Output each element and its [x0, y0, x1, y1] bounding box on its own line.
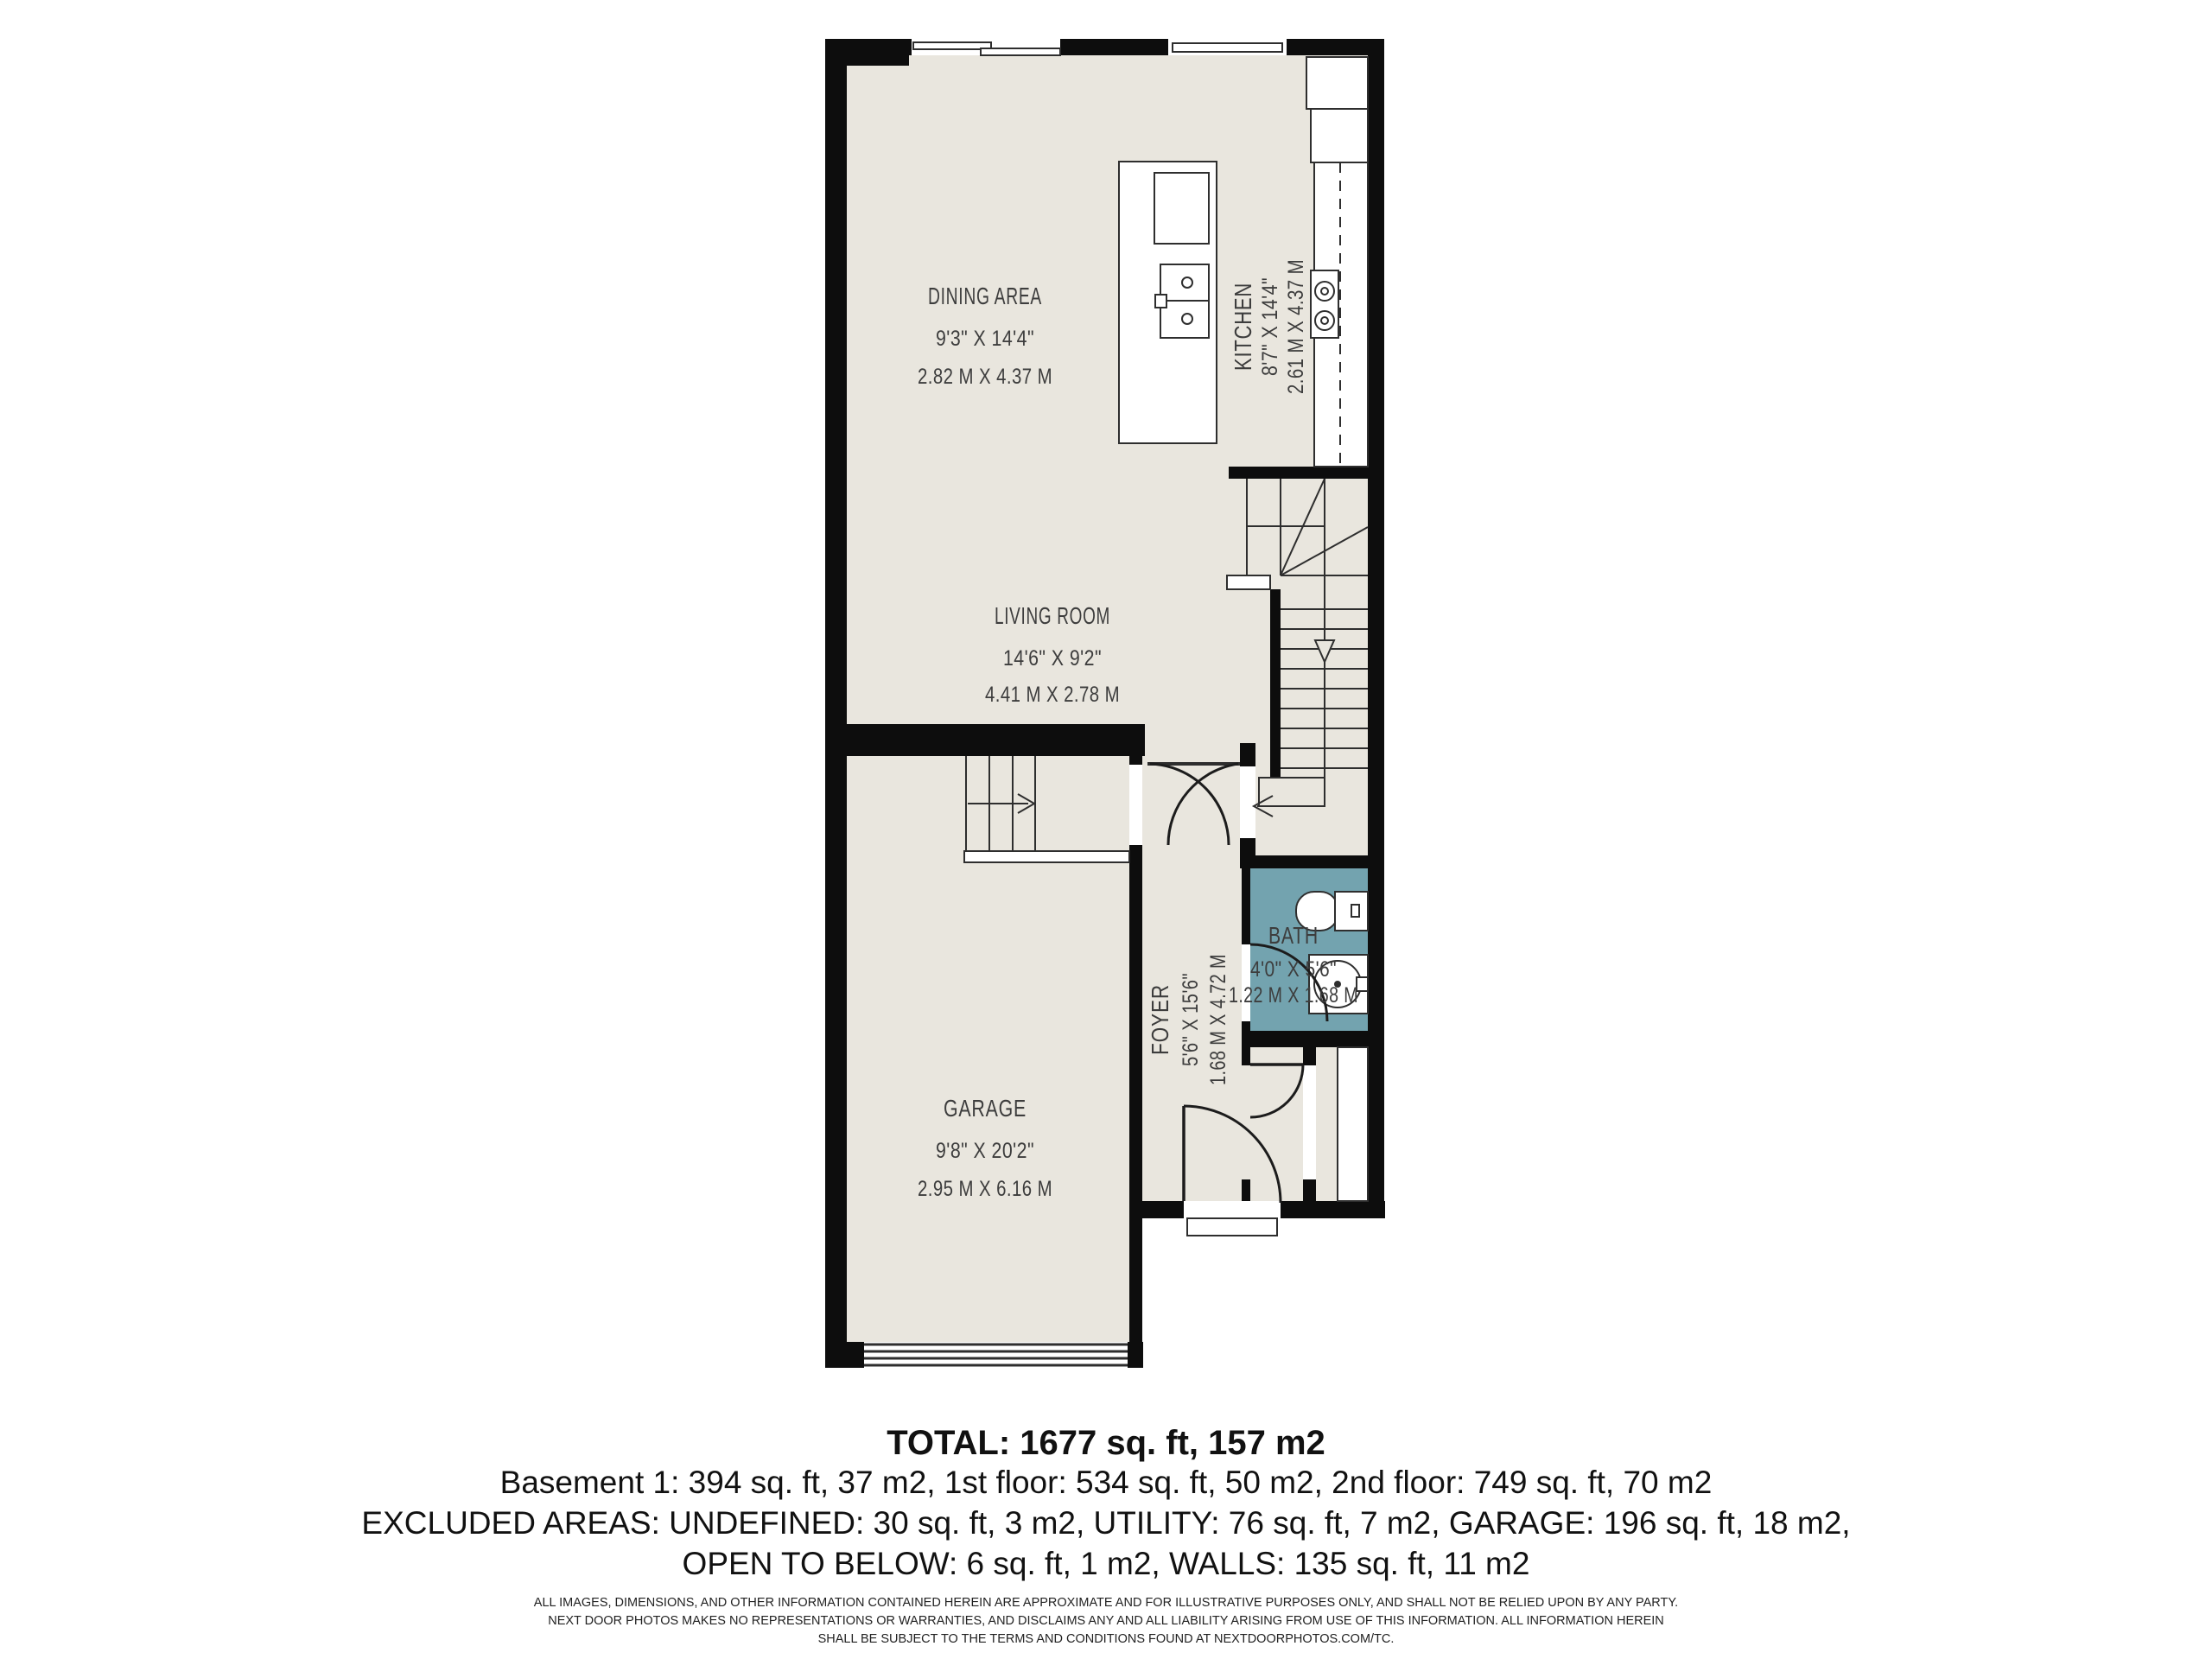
closet-door-opening	[1303, 1065, 1316, 1179]
floorplan-drawing: DINING AREA 9'3" X 14'4" 2.82 M X 4.37 M…	[0, 0, 2212, 1659]
disclaimer-line-3: SHALL BE SUBJECT TO THE TERMS AND CONDIT…	[0, 1630, 2212, 1649]
excluded-areas-text-2: OPEN TO BELOW: 6 sq. ft, 1 m2, WALLS: 13…	[0, 1543, 2212, 1584]
room-dims-bath-metric: 1.22 M X 1.68 M	[1229, 983, 1358, 1007]
window-1-sash-right	[981, 48, 1060, 55]
room-label-bath: BATH	[1268, 922, 1319, 949]
disclaimer-line-1: ALL IMAGES, DIMENSIONS, AND OTHER INFORM…	[0, 1594, 2212, 1612]
jamb-door-opening	[1240, 766, 1255, 838]
disclaimer-line-2: NEXT DOOR PHOTOS MAKES NO REPRESENTATION…	[0, 1612, 2212, 1630]
wall-bath-top	[1242, 855, 1384, 868]
room-label-foyer: FOYER	[1147, 984, 1173, 1055]
wall-kitchen-stair	[1229, 467, 1384, 479]
wall-left	[825, 39, 847, 1368]
window-1-sash-left	[913, 42, 991, 49]
room-label-dining: DINING AREA	[928, 283, 1042, 309]
wall-right	[1368, 39, 1384, 1218]
room-dims-bath-imperial: 4'0" X 5'6"	[1250, 957, 1337, 982]
disclaimer: ALL IMAGES, DIMENSIONS, AND OTHER INFORM…	[0, 1594, 2212, 1649]
room-dims-foyer-metric: 1.68 M X 4.72 M	[1206, 954, 1230, 1085]
wall-garage-corner-right	[1128, 1342, 1143, 1368]
front-door-opening	[1184, 1201, 1281, 1218]
room-dims-dining-imperial: 9'3" X 14'4"	[936, 327, 1034, 351]
room-dims-dining-metric: 2.82 M X 4.37 M	[918, 365, 1052, 389]
floorplan-page: { "plan": { "colors": { "floor": "#e9e6d…	[0, 0, 2212, 1659]
total-area-text: TOTAL: 1677 sq. ft, 157 m2	[0, 1424, 2212, 1462]
stair-jog	[1227, 575, 1270, 589]
room-dims-garage-metric: 2.95 M X 6.16 M	[918, 1177, 1052, 1201]
area-summary: TOTAL: 1677 sq. ft, 157 m2 Basement 1: 3…	[0, 1424, 2212, 1649]
garage-door	[864, 1344, 1128, 1365]
room-label-living: LIVING ROOM	[995, 602, 1110, 629]
steps-landing	[964, 851, 1129, 862]
garage-door-opening	[1129, 765, 1142, 845]
wall-bath-bottom	[1242, 1031, 1368, 1047]
room-dims-garage-imperial: 9'8" X 20'2"	[936, 1139, 1034, 1163]
exterior-cutout	[1142, 1218, 1385, 1368]
wall-garage-corner-left	[825, 1342, 864, 1368]
wall-living-garage	[825, 724, 1145, 756]
island-faucet-icon	[1155, 295, 1166, 308]
porch-step	[1187, 1218, 1277, 1236]
excluded-areas-text-1: EXCLUDED AREAS: UNDEFINED: 30 sq. ft, 3 …	[0, 1503, 2212, 1543]
fridge-icon	[1306, 57, 1368, 109]
island-cooktop	[1154, 173, 1209, 244]
closet-sliding-door	[1338, 1047, 1368, 1201]
floor-areas-text: Basement 1: 394 sq. ft, 37 m2, 1st floor…	[0, 1462, 2212, 1503]
window-2-frame	[1173, 43, 1282, 52]
stove-icon	[1311, 270, 1338, 338]
room-dims-kitchen-metric: 2.61 M X 4.37 M	[1284, 259, 1308, 394]
wall-top	[825, 39, 1384, 55]
wall-top-left-block	[825, 39, 909, 66]
room-label-garage: GARAGE	[944, 1095, 1027, 1122]
fridge-icon-lower	[1311, 109, 1368, 162]
room-dims-foyer-imperial: 5'6" X 15'6"	[1179, 973, 1203, 1066]
wall-stair-left	[1270, 589, 1281, 778]
room-dims-living-imperial: 14'6" X 9'2"	[1003, 646, 1102, 671]
wall-garage-right	[1129, 756, 1142, 1368]
room-dims-living-metric: 4.41 M X 2.78 M	[985, 683, 1120, 707]
room-dims-kitchen-imperial: 8'7" X 14'4"	[1258, 277, 1282, 376]
room-label-kitchen: KITCHEN	[1230, 283, 1256, 371]
